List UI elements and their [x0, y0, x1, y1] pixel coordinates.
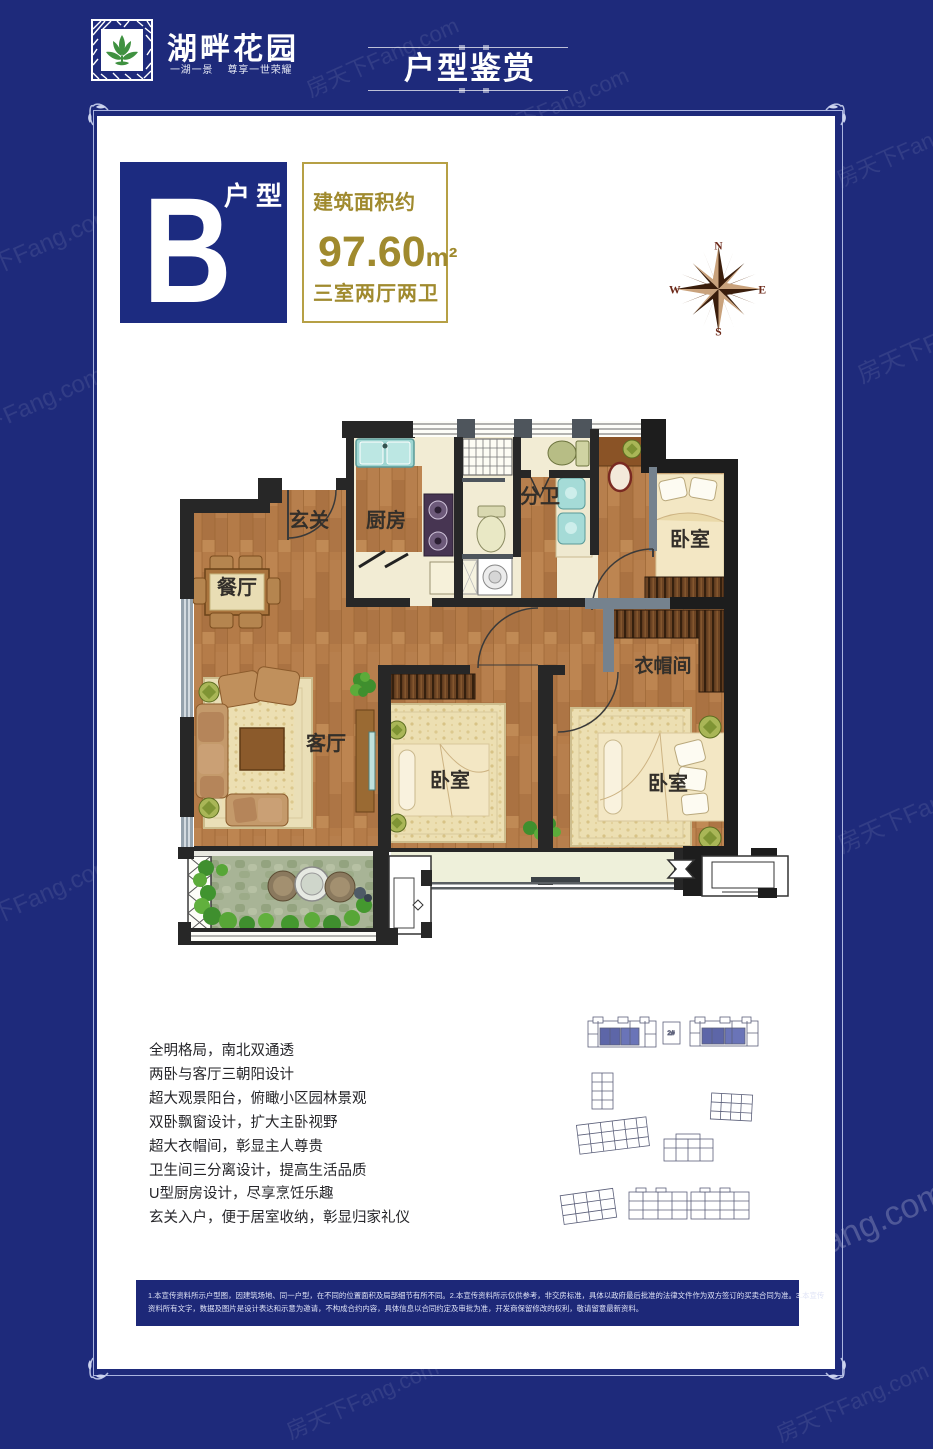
svg-text:厨房: 厨房: [366, 508, 406, 532]
svg-text:卧室: 卧室: [430, 768, 470, 792]
svg-text:分卫: 分卫: [520, 485, 560, 508]
svg-text:客厅: 客厅: [305, 731, 346, 755]
svg-text:餐厅: 餐厅: [217, 575, 257, 599]
svg-text:S: S: [715, 325, 721, 338]
svg-text:卧室: 卧室: [670, 527, 710, 551]
svg-text:2#: 2#: [667, 1030, 675, 1037]
svg-text:E: E: [758, 283, 766, 296]
svg-text:玄关: 玄关: [289, 508, 329, 532]
svg-text:卧室: 卧室: [648, 771, 688, 795]
svg-text:W: W: [669, 283, 681, 296]
svg-text:N: N: [714, 240, 723, 253]
svg-text:衣帽间: 衣帽间: [634, 654, 691, 677]
